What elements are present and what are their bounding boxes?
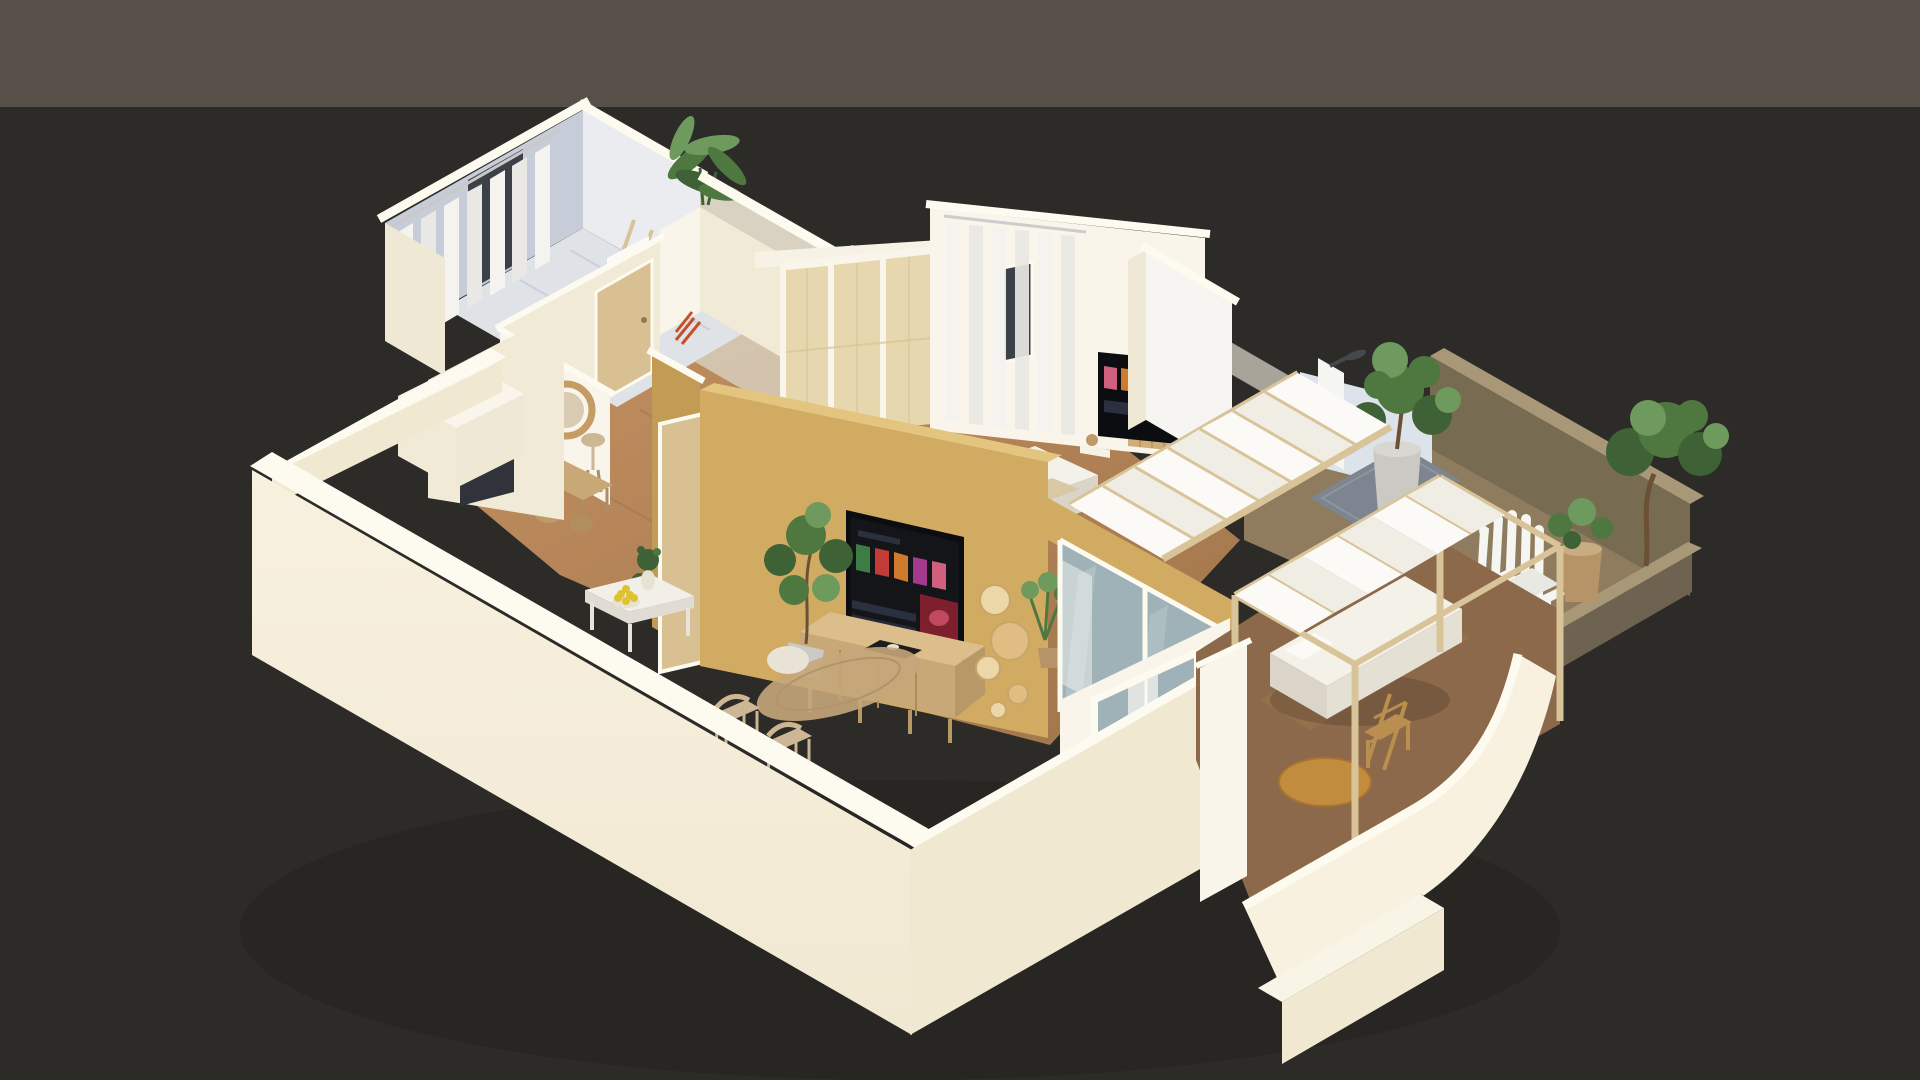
balcony-side-wall: [1200, 642, 1247, 902]
movie-poster: [875, 548, 889, 577]
door-handle: [641, 317, 647, 323]
movie-poster: [913, 557, 927, 586]
movie-poster: [932, 561, 946, 590]
render-canvas: [0, 0, 1920, 1080]
background-top-band: [0, 0, 1920, 107]
wicker-basket: [569, 515, 593, 533]
shelf-decor: [1086, 434, 1098, 446]
movie-poster: [894, 552, 908, 582]
movie-poster: [856, 544, 870, 573]
isometric-apartment-render: [0, 0, 1920, 1080]
pouf: [767, 646, 809, 674]
